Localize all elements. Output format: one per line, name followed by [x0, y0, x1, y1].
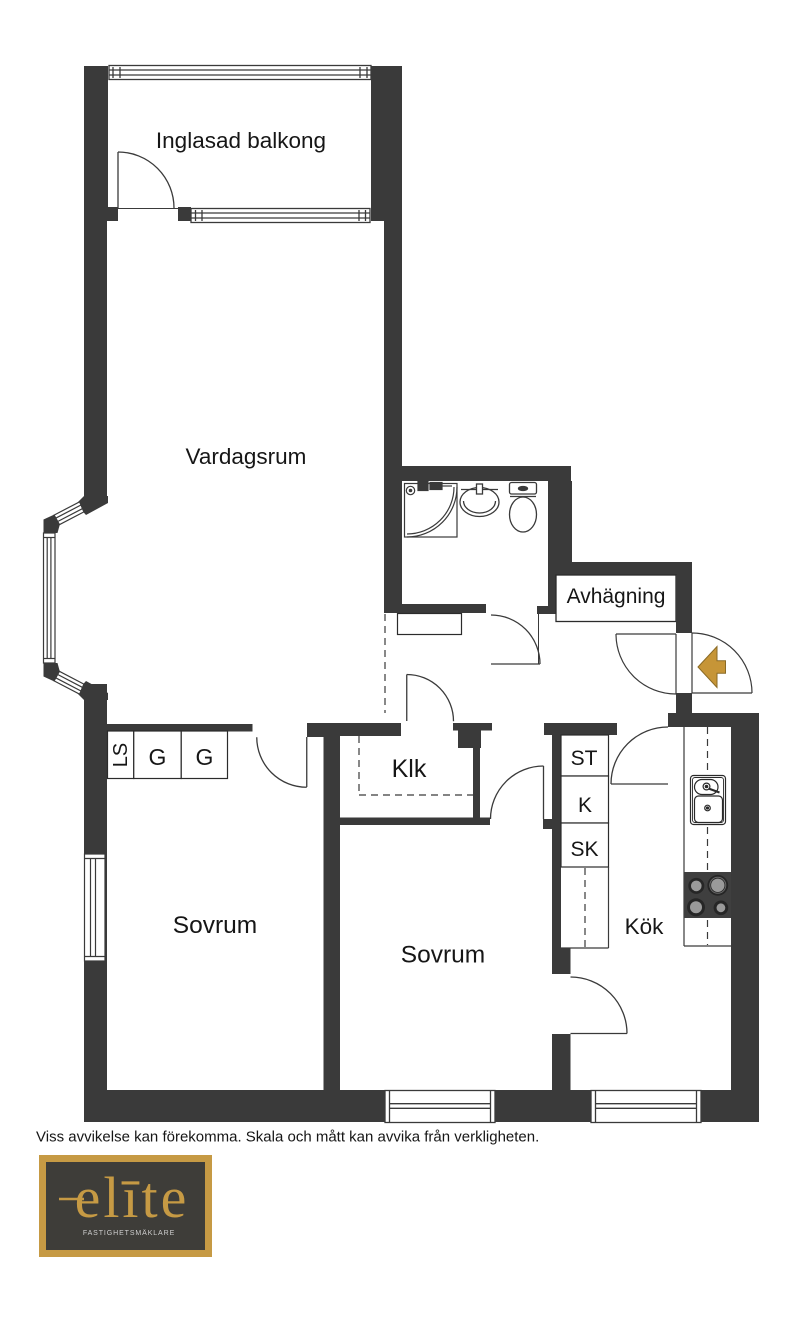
svg-text:G: G: [196, 744, 214, 770]
svg-text:elīte: elīte: [75, 1165, 190, 1230]
svg-text:Avhägning: Avhägning: [567, 585, 666, 608]
svg-text:K: K: [578, 794, 592, 817]
svg-text:FASTIGHETSMÄKLARE: FASTIGHETSMÄKLARE: [83, 1229, 175, 1237]
svg-text:Kök: Kök: [625, 914, 665, 939]
svg-text:Sovrum: Sovrum: [401, 942, 485, 969]
svg-text:LS: LS: [110, 743, 132, 767]
svg-text:G: G: [149, 744, 167, 770]
svg-text:SK: SK: [570, 838, 598, 861]
svg-text:Vardagsrum: Vardagsrum: [186, 444, 307, 469]
svg-text:Klk: Klk: [392, 755, 427, 783]
svg-text:Inglasad balkong: Inglasad balkong: [156, 128, 326, 153]
svg-text:Sovrum: Sovrum: [173, 912, 257, 939]
svg-text:ST: ST: [571, 747, 598, 770]
svg-text:Viss avvikelse kan förekomma.: Viss avvikelse kan förekomma. Skala och …: [36, 1129, 539, 1146]
